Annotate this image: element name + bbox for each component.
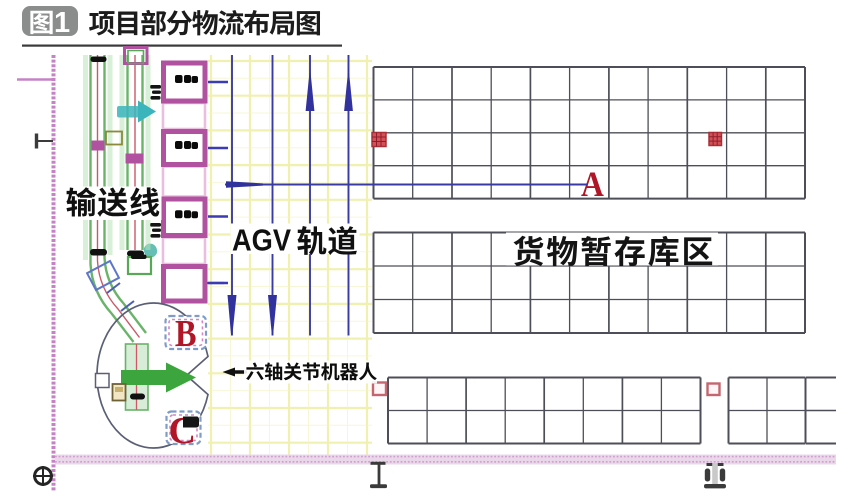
svg-text:1: 1 (54, 7, 70, 39)
svg-text:C: C (169, 410, 196, 452)
svg-text:AGV: AGV (232, 222, 291, 257)
svg-text:B: B (175, 313, 197, 355)
